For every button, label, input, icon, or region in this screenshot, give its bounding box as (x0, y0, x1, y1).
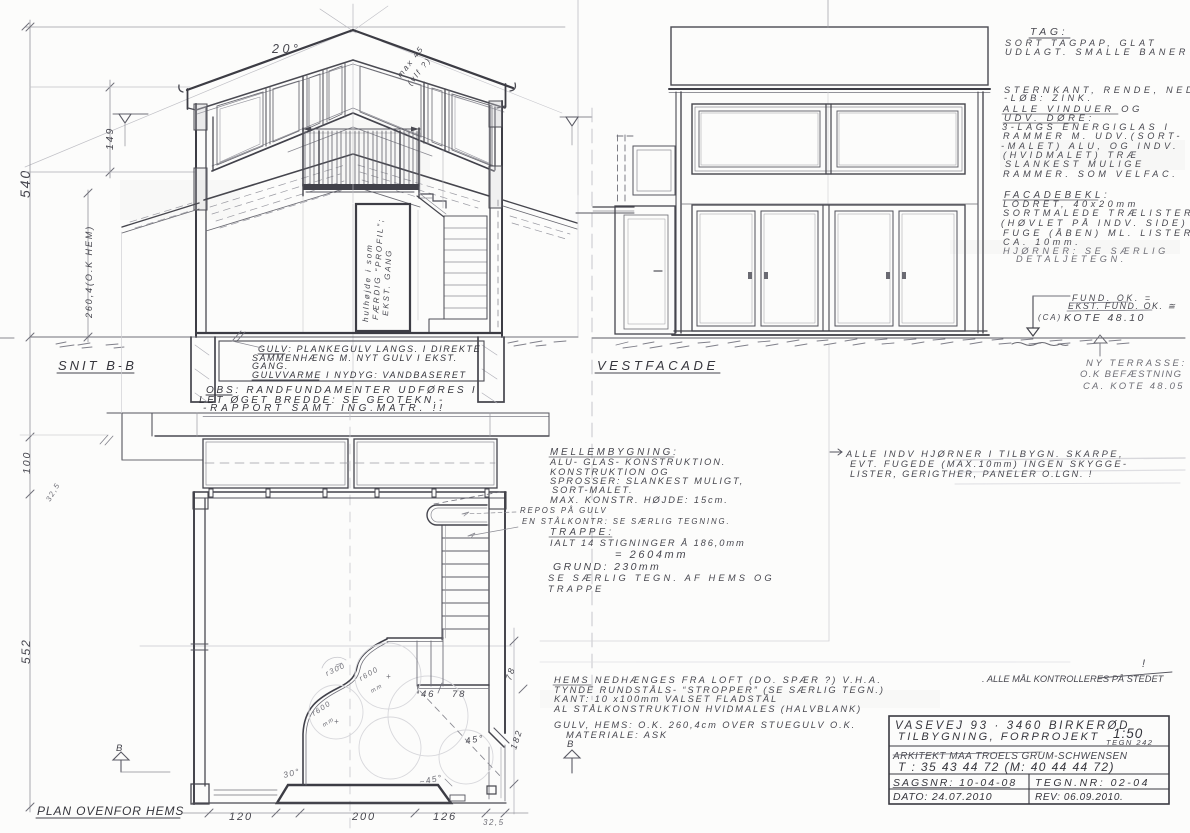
svg-text:O.K BEFÆSTNING: O.K BEFÆSTNING (1080, 369, 1182, 380)
svg-text:IALT 14 STIGNINGER Å 186,0mm: IALT 14 STIGNINGER Å 186,0mm (550, 538, 746, 548)
svg-text:+: + (386, 672, 392, 681)
svg-text:GULVVARME I NYDYG: VANDBASERET: GULVVARME I NYDYG: VANDBASERET (252, 370, 467, 380)
svg-text:REV: 06.09.2010.: REV: 06.09.2010. (1035, 792, 1123, 803)
svg-text:(HØVLET PÅ INDV. SIDE): (HØVLET PÅ INDV. SIDE) (1001, 218, 1188, 228)
svg-text:NY TERRASSE:: NY TERRASSE: (1086, 358, 1187, 369)
svg-text:SNIT B-B: SNIT B-B (58, 358, 137, 373)
svg-text:120: 120 (229, 811, 253, 823)
svg-text:!: ! (1142, 658, 1147, 670)
svg-text:MATERIALE: ASK: MATERIALE: ASK (566, 730, 668, 740)
svg-text:149: 149 (104, 127, 116, 150)
svg-text:RAMMER M. UDV.(SORT-: RAMMER M. UDV.(SORT- (1003, 131, 1183, 141)
svg-text:46: 46 (421, 689, 435, 700)
svg-text:PLAN OVENFOR HEMS: PLAN OVENFOR HEMS (37, 804, 184, 818)
svg-text:-RAPPORT SAMT ING.MATR. !!: -RAPPORT SAMT ING.MATR. !! (203, 403, 446, 414)
svg-text:TILBYGNING, FORPROJEKT: TILBYGNING, FORPROJEKT (898, 731, 1100, 743)
svg-text:32,5: 32,5 (483, 818, 505, 827)
svg-text:ALU- GLAS- KONSTRUKTION.: ALU- GLAS- KONSTRUKTION. (549, 457, 726, 467)
svg-text:SORTMALEDE TRÆLISTER: SORTMALEDE TRÆLISTER (1003, 208, 1190, 218)
svg-text:+: + (334, 717, 340, 726)
svg-text:SE SÆRLIG TEGN. AF HEMS OG: SE SÆRLIG TEGN. AF HEMS OG (548, 573, 775, 583)
svg-text:TEGN.NR: 02-04: TEGN.NR: 02-04 (1035, 777, 1150, 789)
svg-text:540: 540 (17, 169, 33, 198)
svg-text:= 2604mm: = 2604mm (615, 549, 688, 561)
svg-text:(CA): (CA) (1038, 313, 1062, 322)
svg-text:EVT. FUGEDE (MAX.10mm) INGEN: EVT. FUGEDE (MAX.10mm) INGEN SKYGGE- (850, 459, 1128, 469)
svg-text:CA. KOTE 48.05: CA. KOTE 48.05 (1083, 381, 1185, 392)
svg-text:TRAPPE:: TRAPPE: (550, 527, 614, 538)
svg-text:100: 100 (21, 451, 33, 474)
svg-text:TEGN 242: TEGN 242 (1106, 738, 1153, 747)
svg-text:ALLE INDV HJØRNER I TILBYGN: ALLE INDV HJØRNER I TILBYGN. SKARPE, (845, 449, 1124, 459)
svg-text:TAG:: TAG: (1030, 26, 1068, 38)
svg-text:. ALLE MÅL KONTROLLERES PÅ STE: . ALLE MÅL KONTROLLERES PÅ STEDET (982, 674, 1165, 684)
svg-text:HEMS NEDHÆNGES FRA LOFT (D: HEMS NEDHÆNGES FRA LOFT (DO. SPÆR ?) V.H… (554, 675, 882, 685)
svg-text:20°: 20° (271, 42, 301, 56)
svg-text:78: 78 (452, 689, 466, 700)
svg-text:GRUND: 230mm: GRUND: 230mm (553, 561, 661, 573)
svg-text:RAMMER. SOM VELFAC.: RAMMER. SOM VELFAC. (1003, 169, 1178, 179)
svg-text:200: 200 (351, 811, 376, 823)
svg-text:DATO: 24.07.2010: DATO: 24.07.2010 (893, 791, 992, 803)
svg-text:EN STÅLKONTR: SE SÆRLIG TEGNIN: EN STÅLKONTR: SE SÆRLIG TEGNING. (522, 517, 731, 526)
svg-text:TRAPPE: TRAPPE (548, 584, 604, 594)
svg-text:126: 126 (433, 811, 457, 823)
svg-text:GULV, HEMS: O.K. 260,4cm O: GULV, HEMS: O.K. 260,4cm OVER STUEGULV O… (554, 720, 856, 730)
svg-text:DETALJETEGN.: DETALJETEGN. (1016, 254, 1127, 264)
svg-text:UDLAGT. SMALLE BANER: UDLAGT. SMALLE BANER (1005, 47, 1189, 57)
svg-text:260,4(O.K HEM): 260,4(O.K HEM) (84, 225, 94, 319)
svg-text:552: 552 (19, 638, 33, 664)
svg-text:KOTE 48.10: KOTE 48.10 (1064, 312, 1146, 324)
svg-text:LISTER, GERIGTHER, PANELER: LISTER, GERIGTHER, PANELER O.LGN. ! (850, 469, 1093, 479)
svg-text:SORT-MALET.: SORT-MALET. (552, 485, 634, 495)
svg-text:B: B (567, 739, 575, 750)
svg-text:REPOS PÅ GULV: REPOS PÅ GULV (520, 506, 608, 515)
svg-text:T : 35 43 44 72 (M: 40 44 44 7: T : 35 43 44 72 (M: 40 44 44 72) (898, 760, 1115, 774)
svg-text:VESTFACADE: VESTFACADE (597, 358, 719, 373)
svg-text:MAX. KONSTR. HØJDE: 15cm.: MAX. KONSTR. HØJDE: 15cm. (550, 495, 729, 505)
svg-text:-LØB: ZINK.: -LØB: ZINK. (1004, 93, 1094, 103)
